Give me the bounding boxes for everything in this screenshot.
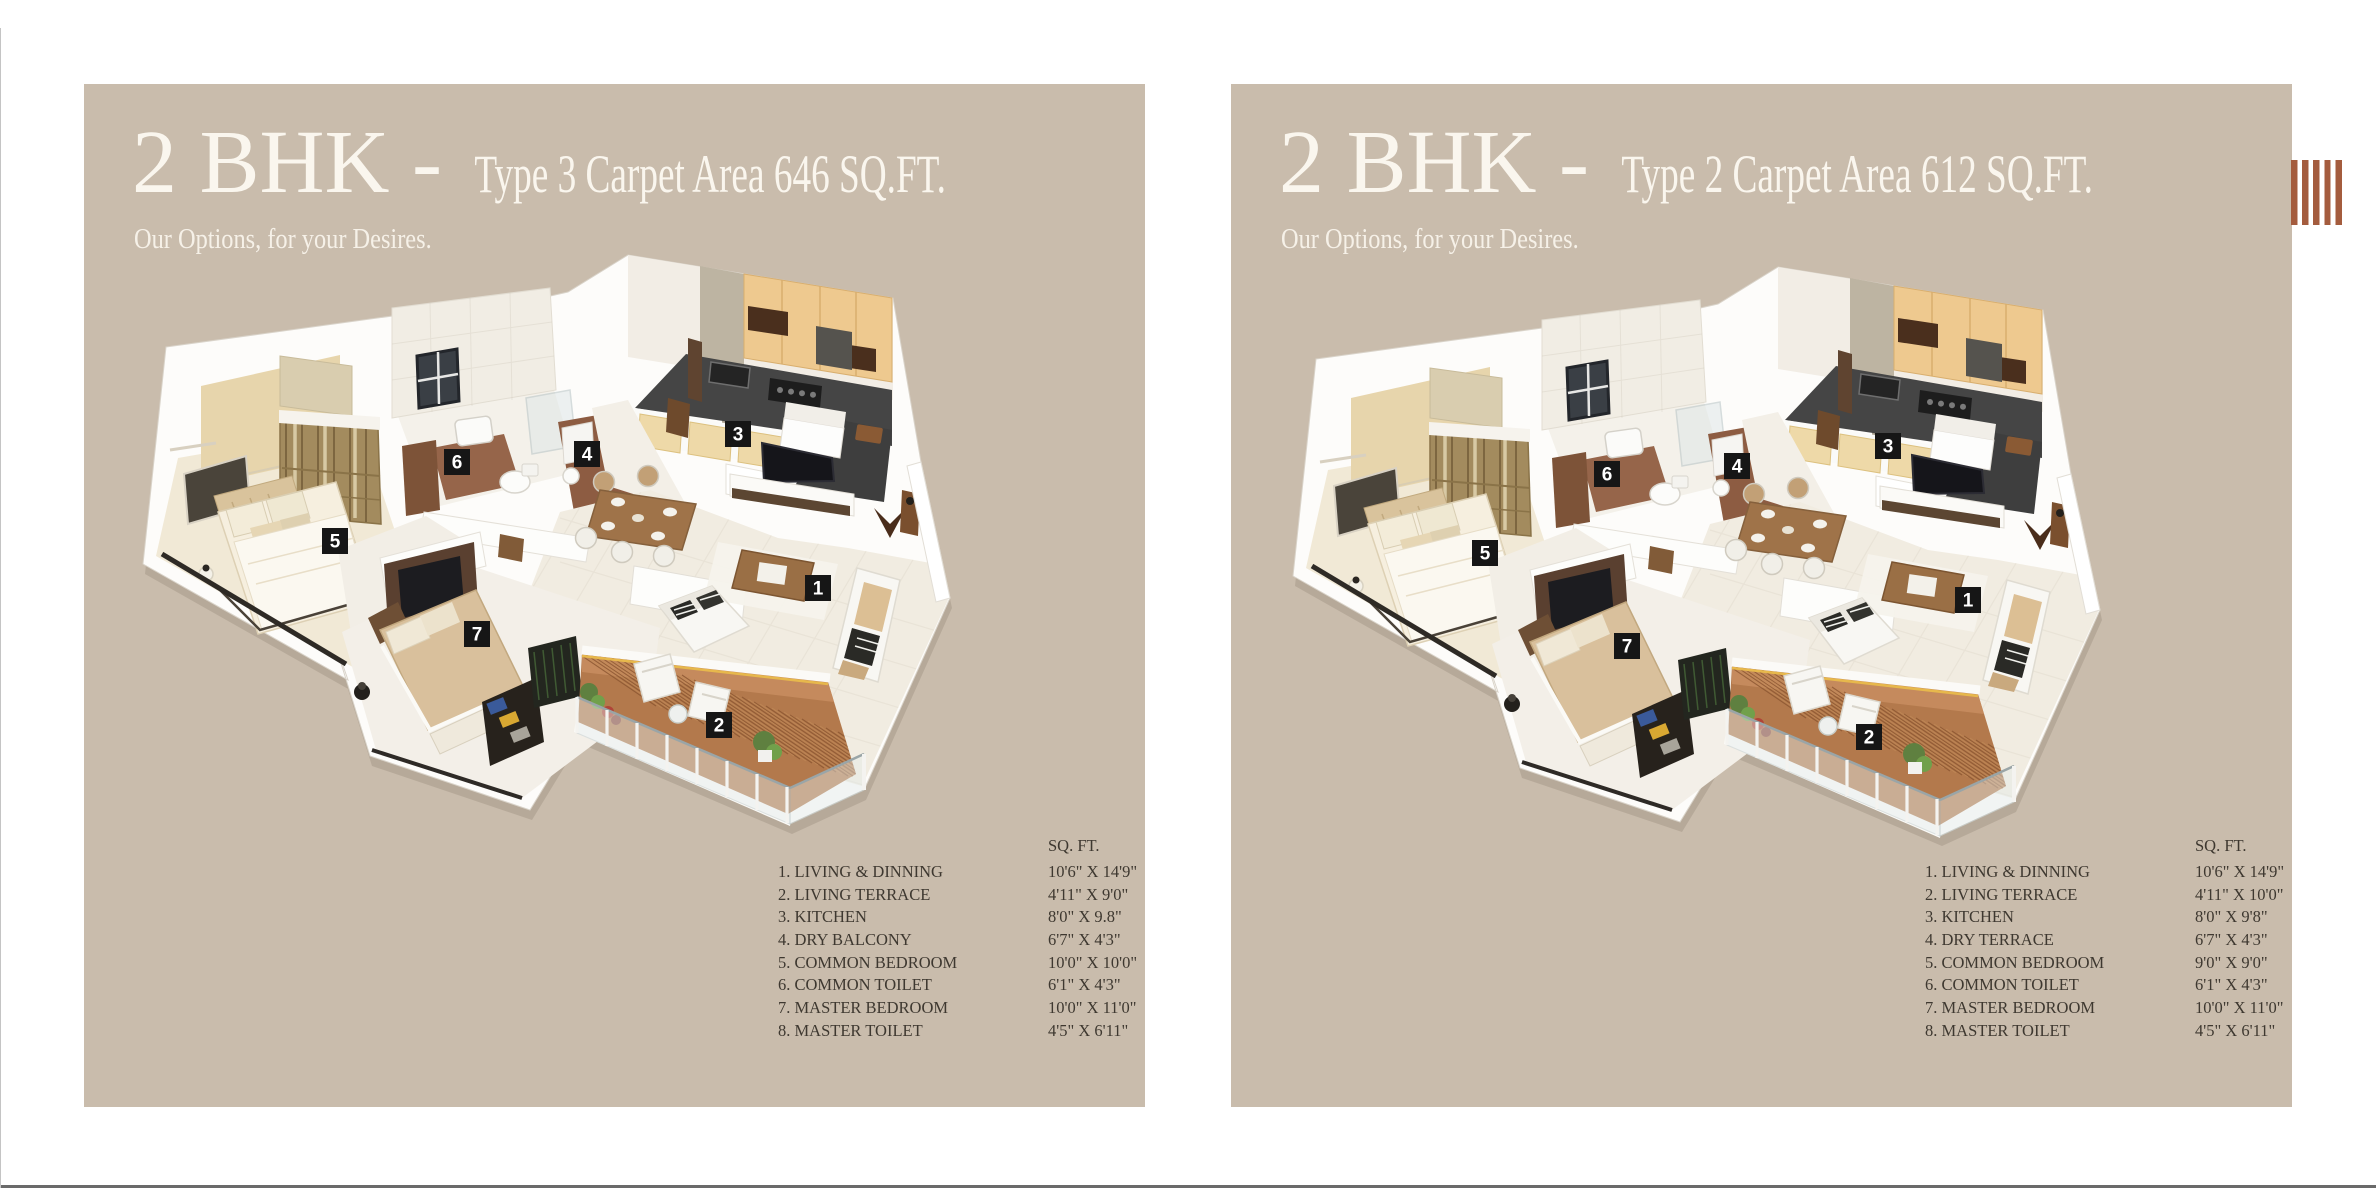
- svg-text:7: 7: [1622, 637, 1633, 658]
- svg-text:6: 6: [452, 453, 463, 474]
- svg-text:1: 1: [813, 579, 824, 600]
- svg-text:6: 6: [1602, 465, 1613, 486]
- svg-text:3: 3: [1883, 437, 1894, 458]
- svg-text:4: 4: [1732, 457, 1743, 478]
- svg-text:5: 5: [330, 532, 341, 553]
- svg-text:1: 1: [1963, 591, 1974, 612]
- svg-text:4: 4: [582, 445, 593, 466]
- svg-text:2: 2: [1864, 728, 1875, 749]
- svg-text:3: 3: [733, 425, 744, 446]
- svg-text:2: 2: [714, 716, 725, 737]
- svg-text:5: 5: [1480, 544, 1491, 565]
- svg-text:7: 7: [472, 625, 483, 646]
